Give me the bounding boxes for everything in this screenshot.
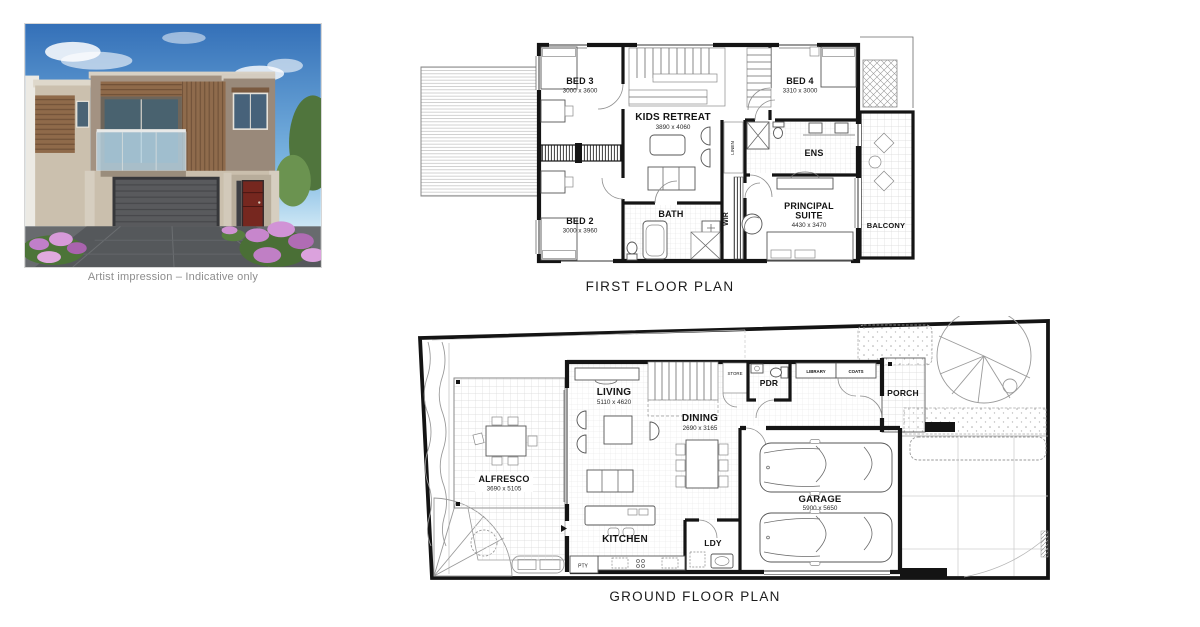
- wir-label: WIR: [723, 212, 730, 226]
- bath-label: BATH: [658, 209, 683, 219]
- bed4-dims: 3310 x 3000: [783, 88, 818, 95]
- alfresco-dims: 3690 x 5105: [487, 486, 522, 493]
- photo-front-door: [232, 175, 272, 229]
- stairs: [629, 48, 771, 107]
- car-1: [760, 440, 892, 496]
- kitchen-label: KITCHEN: [602, 534, 648, 545]
- coats-label: COATS: [848, 369, 863, 374]
- kids-retreat-label: KIDS RETREAT: [635, 112, 711, 123]
- bed2-label: BED 2: [566, 216, 594, 226]
- bed4-label: BED 4: [786, 76, 814, 86]
- pdr-label: PDR: [760, 378, 779, 388]
- photo-caption: Artist impression – Indicative only: [24, 271, 322, 283]
- living-dims: 5110 x 4620: [597, 399, 632, 406]
- roof-trellis: [860, 37, 913, 108]
- robes: [541, 143, 621, 163]
- car-2: [760, 510, 892, 566]
- store-label: STORE: [727, 371, 742, 376]
- photo-garage-door: [112, 177, 219, 227]
- photo-house: [25, 72, 279, 229]
- dining-furniture: [676, 440, 728, 488]
- ground-floor-plan: ALFRESCO 3690 x 5105 PORCH: [412, 316, 1057, 584]
- linen-closet: LINEN: [724, 122, 743, 173]
- ldy-label: LDY: [704, 538, 722, 548]
- principal-dims: 4430 x 3470: [792, 222, 827, 229]
- first-floor-plan: BALCONY: [415, 28, 920, 278]
- bed2-dims: 3000 x 3960: [563, 228, 598, 235]
- dining-dims: 2690 x 3165: [683, 425, 718, 432]
- kids-retreat-furniture: [648, 127, 710, 190]
- bed3-label: BED 3: [566, 76, 594, 86]
- dining-label: DINING: [682, 413, 718, 424]
- pty-label: PTY: [578, 564, 588, 570]
- roof-below-left: [421, 67, 539, 196]
- bed4-furniture: [810, 47, 856, 87]
- porch: PORCH: [882, 358, 925, 432]
- principal-label-1: PRINCIPAL: [784, 201, 834, 211]
- ground-floor-title: GROUND FLOOR PLAN: [570, 589, 820, 604]
- bed3-dims: 3000 x 3600: [563, 88, 598, 95]
- balcony: BALCONY: [860, 112, 913, 258]
- kids-retreat-dims: 3890 x 4060: [656, 124, 691, 131]
- porch-label: PORCH: [887, 388, 919, 398]
- house-render: [25, 24, 321, 267]
- wir: WIR: [723, 177, 743, 259]
- ens-label: ENS: [804, 148, 823, 158]
- balcony-label: BALCONY: [867, 221, 905, 230]
- principal-label-2: SUITE: [795, 211, 823, 221]
- living-label: LIVING: [597, 387, 632, 398]
- library-label: LIBRARY: [806, 369, 825, 374]
- garage-door: [764, 568, 890, 576]
- photo-balcony-glass: [97, 129, 186, 171]
- garage-label: GARAGE: [799, 494, 842, 505]
- alfresco-label: ALFRESCO: [478, 474, 529, 484]
- linen-label: LINEN: [730, 141, 735, 155]
- first-floor-title: FIRST FLOOR PLAN: [535, 279, 785, 294]
- artist-impression-photo: [24, 23, 322, 268]
